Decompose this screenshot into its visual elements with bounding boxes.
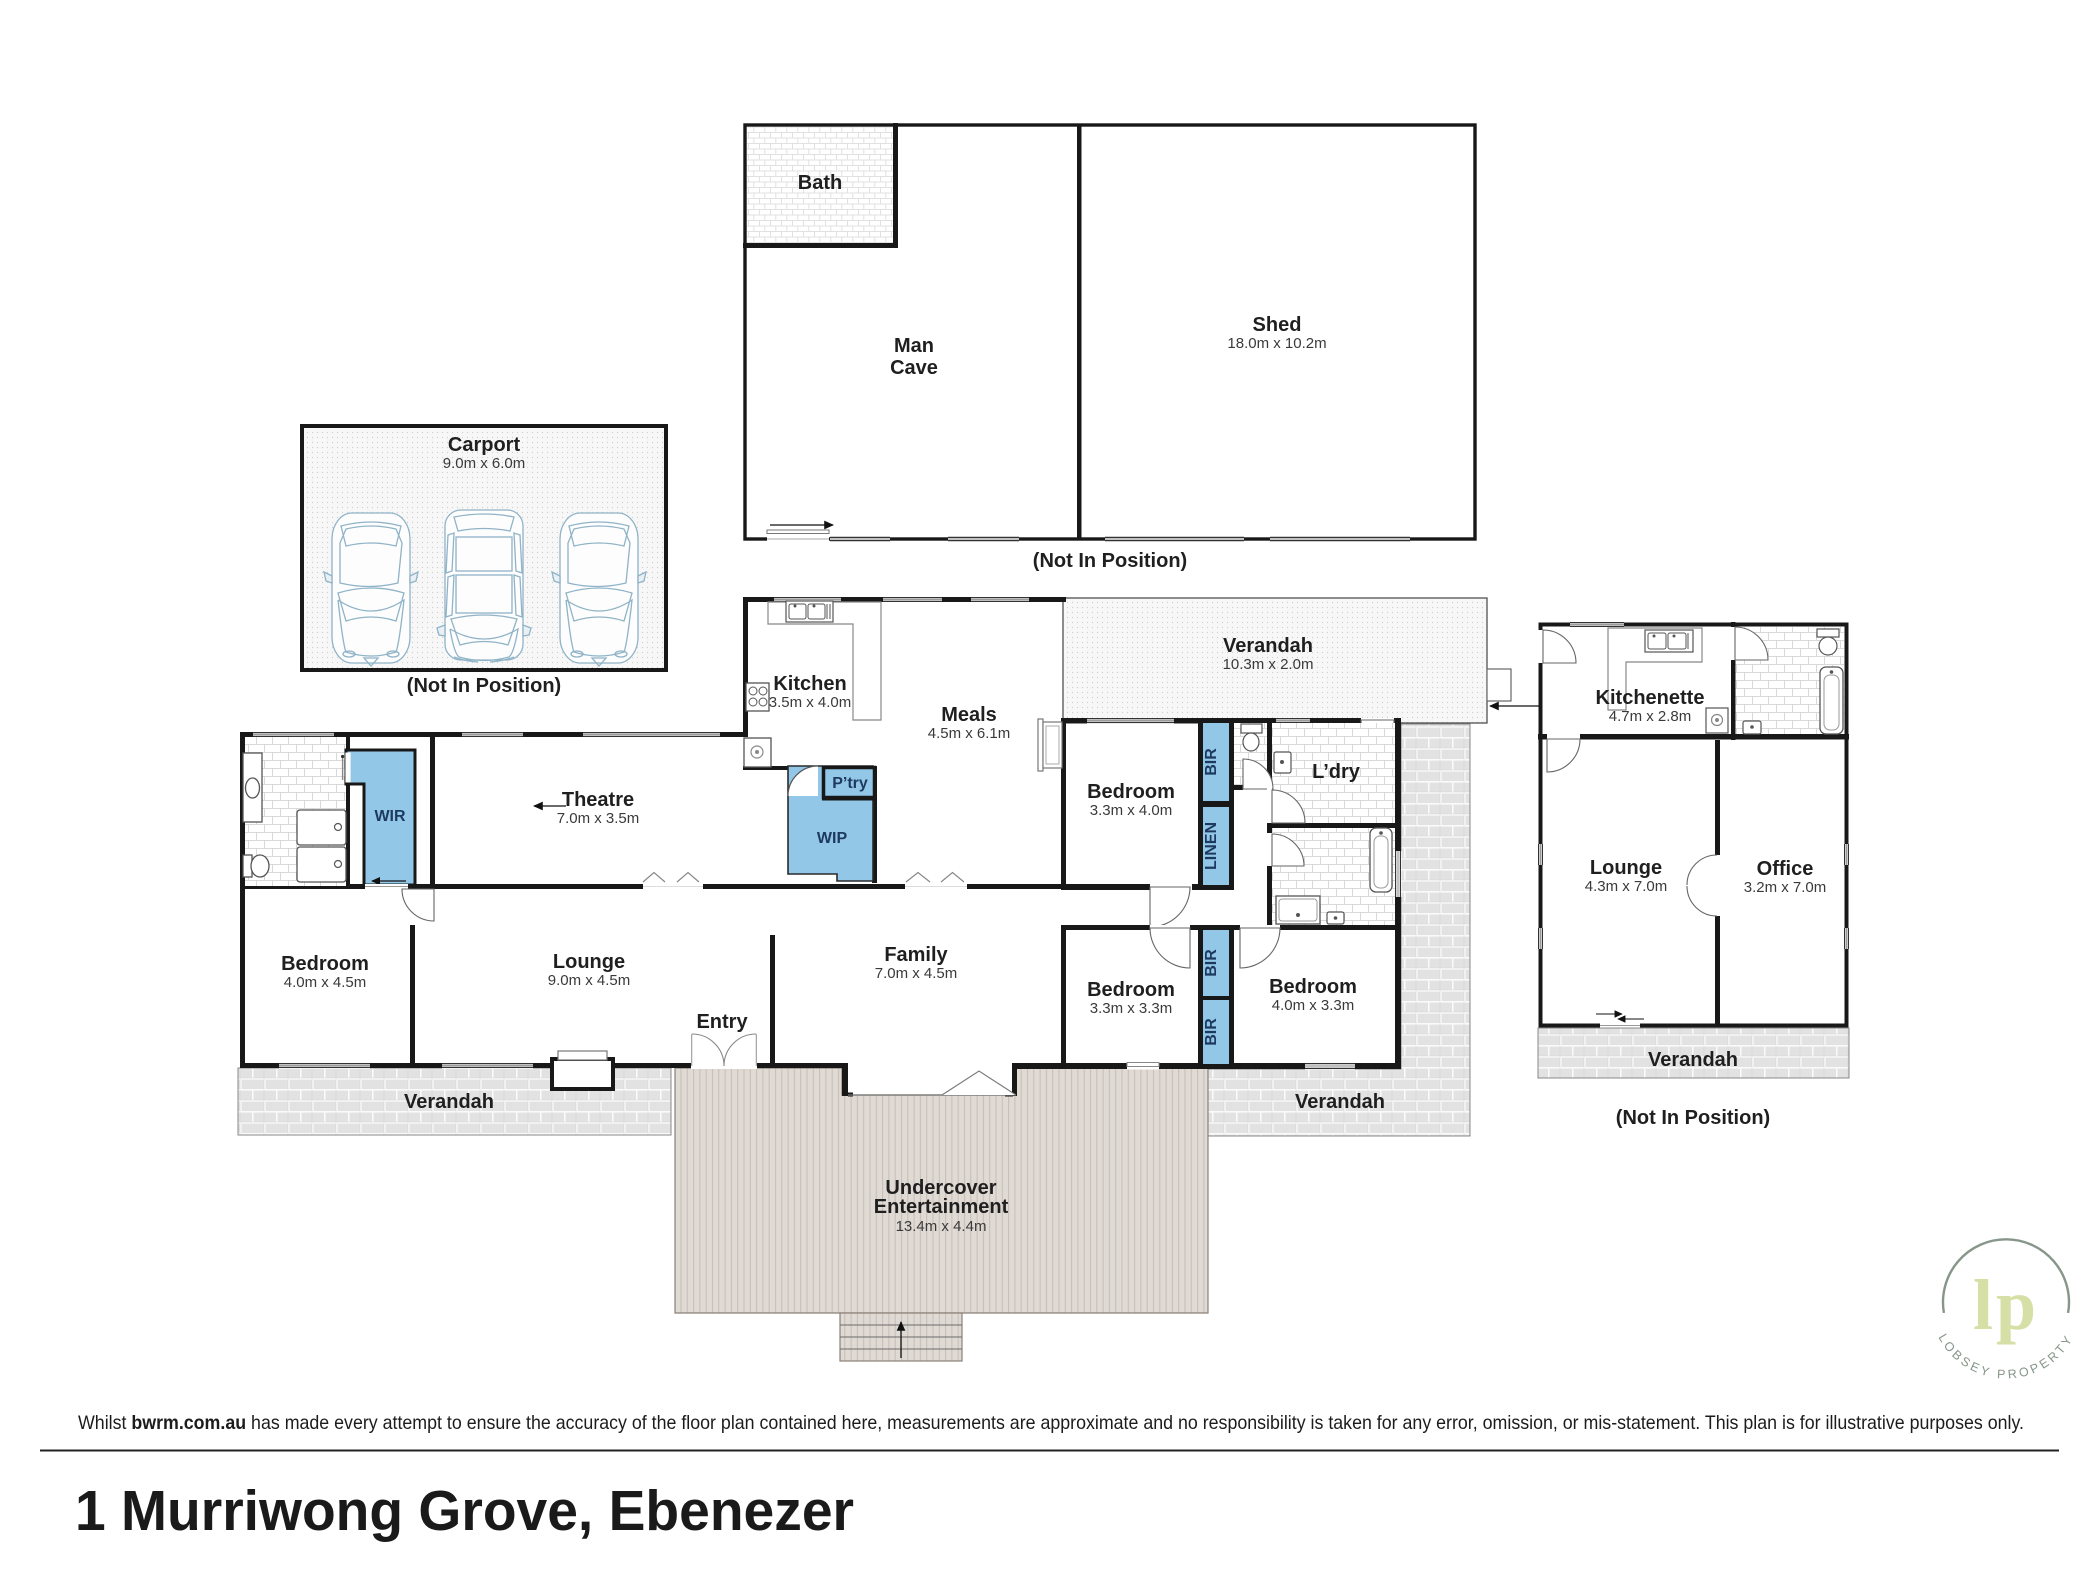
svg-text:BIR: BIR (1203, 748, 1220, 776)
svg-text:Shed: Shed (1253, 314, 1302, 336)
svg-text:Entry: Entry (696, 1011, 748, 1033)
svg-text:Kitchen: Kitchen (773, 673, 846, 695)
svg-text:3.2m x 7.0m: 3.2m x 7.0m (1744, 879, 1827, 896)
svg-text:P’try: P’try (832, 775, 868, 792)
svg-text:Man: Man (894, 335, 934, 357)
svg-text:LINEN: LINEN (1203, 822, 1220, 870)
svg-text:Bath: Bath (798, 172, 842, 194)
svg-text:Verandah: Verandah (1648, 1049, 1738, 1071)
svg-text:4.0m x 3.3m: 4.0m x 3.3m (1272, 997, 1355, 1014)
svg-text:9.0m x 6.0m: 9.0m x 6.0m (443, 455, 526, 472)
svg-text:4.0m x 4.5m: 4.0m x 4.5m (284, 974, 367, 991)
svg-text:L’dry: L’dry (1312, 761, 1361, 783)
svg-text:18.0m x 10.2m: 18.0m x 10.2m (1227, 335, 1326, 352)
svg-text:4.5m x 6.1m: 4.5m x 6.1m (928, 725, 1011, 742)
svg-text:Office: Office (1757, 858, 1814, 880)
svg-text:Bedroom: Bedroom (1087, 781, 1175, 803)
svg-text:Carport: Carport (448, 434, 521, 456)
svg-text:Lounge: Lounge (1590, 857, 1662, 879)
svg-text:4.7m x 2.8m: 4.7m x 2.8m (1609, 708, 1692, 725)
svg-text:Theatre: Theatre (562, 789, 634, 811)
svg-text:Kitchenette: Kitchenette (1596, 687, 1705, 709)
svg-text:3.5m x 4.0m: 3.5m x 4.0m (769, 694, 852, 711)
svg-text:Meals: Meals (941, 704, 997, 726)
svg-text:Bedroom: Bedroom (281, 953, 369, 975)
svg-text:BIR: BIR (1203, 949, 1220, 977)
svg-text:Cave: Cave (890, 357, 938, 379)
svg-text:Bedroom: Bedroom (1269, 976, 1357, 998)
svg-text:BIR: BIR (1203, 1018, 1220, 1046)
svg-text:13.4m x 4.4m: 13.4m x 4.4m (896, 1218, 987, 1235)
svg-text:WIR: WIR (374, 808, 406, 825)
svg-text:Bedroom: Bedroom (1087, 979, 1175, 1001)
svg-text:Lounge: Lounge (553, 951, 625, 973)
svg-text:(Not In Position): (Not In Position) (1616, 1107, 1770, 1129)
svg-text:WIP: WIP (817, 830, 848, 847)
svg-text:lp: lp (1973, 1265, 2039, 1345)
svg-text:4.3m x 7.0m: 4.3m x 7.0m (1585, 878, 1668, 895)
svg-text:7.0m x 3.5m: 7.0m x 3.5m (557, 810, 640, 827)
svg-text:Family: Family (884, 944, 948, 966)
svg-text:Entertainment: Entertainment (874, 1196, 1009, 1218)
svg-text:1 Murriwong Grove, Ebenezer: 1 Murriwong Grove, Ebenezer (75, 1479, 854, 1543)
svg-text:Verandah: Verandah (1223, 635, 1313, 657)
svg-text:Verandah: Verandah (404, 1091, 494, 1113)
svg-text:9.0m x 4.5m: 9.0m x 4.5m (548, 972, 631, 989)
svg-text:3.3m x 4.0m: 3.3m x 4.0m (1090, 802, 1173, 819)
svg-text:(Not In Position): (Not In Position) (407, 675, 561, 697)
svg-text:3.3m x 3.3m: 3.3m x 3.3m (1090, 1000, 1173, 1017)
svg-text:Whilst bwrm.com.au has made ev: Whilst bwrm.com.au has made every attemp… (78, 1412, 2024, 1434)
svg-text:7.0m x 4.5m: 7.0m x 4.5m (875, 965, 958, 982)
svg-text:10.3m x 2.0m: 10.3m x 2.0m (1223, 656, 1314, 673)
svg-text:(Not In Position): (Not In Position) (1033, 550, 1187, 572)
svg-text:Verandah: Verandah (1295, 1091, 1385, 1113)
